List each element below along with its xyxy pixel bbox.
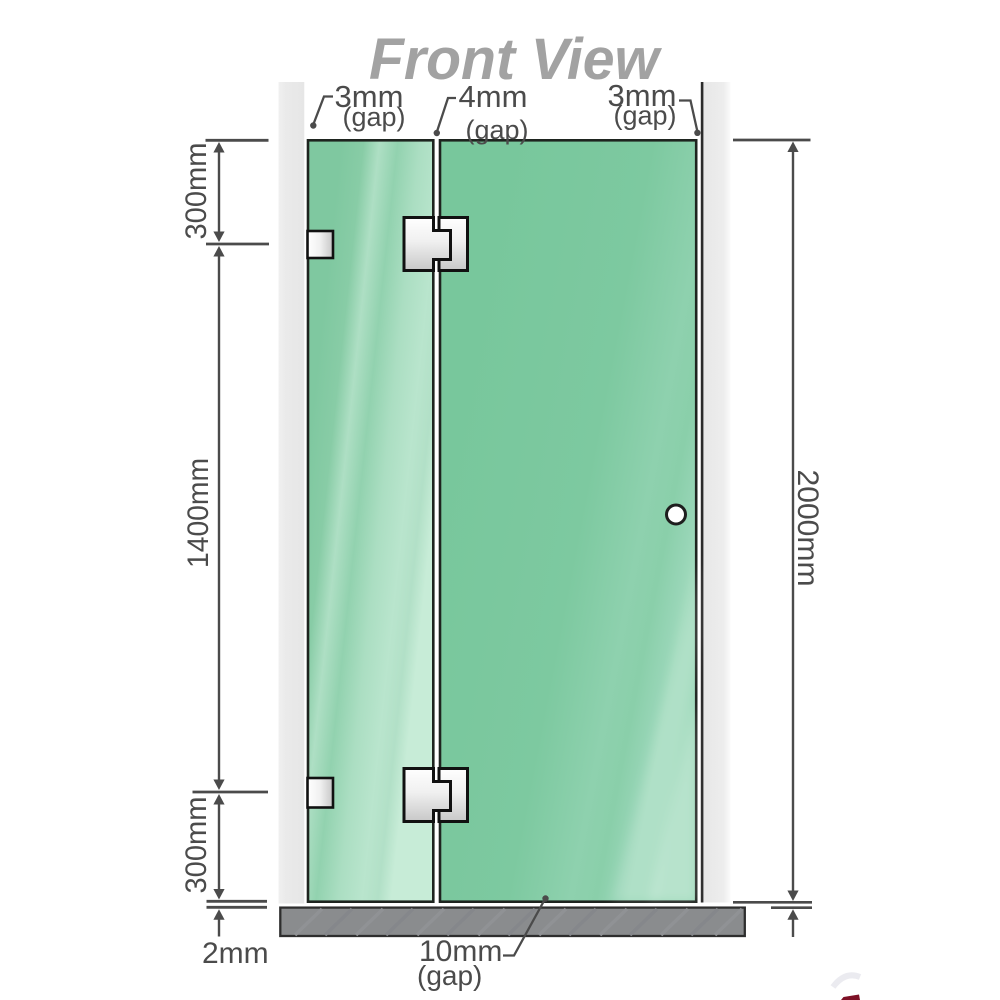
svg-text:4mm: 4mm	[459, 79, 528, 114]
svg-text:2mm: 2mm	[202, 937, 269, 970]
svg-text:(gap): (gap)	[465, 115, 528, 145]
svg-text:2000mm: 2000mm	[791, 470, 824, 587]
svg-text:(gap): (gap)	[613, 101, 676, 131]
svg-text:300mm: 300mm	[180, 143, 213, 240]
svg-text:(gap): (gap)	[417, 960, 482, 991]
svg-text:300mm: 300mm	[180, 797, 213, 894]
svg-text:(gap): (gap)	[342, 102, 405, 132]
svg-text:1400mm: 1400mm	[182, 458, 215, 568]
